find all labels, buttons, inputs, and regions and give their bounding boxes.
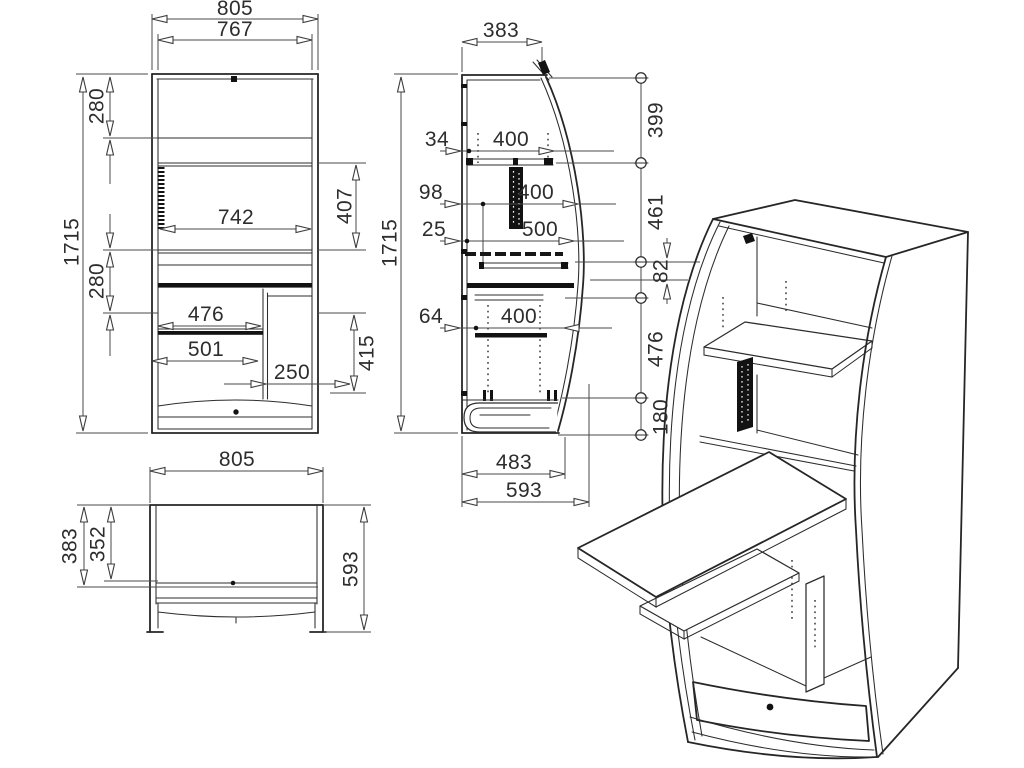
iso-drawer-knob xyxy=(767,704,774,711)
dim-399: 399 xyxy=(645,102,668,138)
dim-501: 501 xyxy=(188,338,224,361)
dim-98: 98 xyxy=(419,181,443,204)
dim-476-side: 476 xyxy=(645,331,668,367)
dim-1715-side: 1715 xyxy=(379,219,402,267)
dim-280-upper: 280 xyxy=(86,88,109,124)
iso-hinge xyxy=(743,233,755,244)
dim-805-top: 805 xyxy=(217,0,253,20)
iso-drawer xyxy=(690,682,874,757)
dim-742: 742 xyxy=(218,206,254,229)
iso-divider xyxy=(806,576,824,692)
plan-view: 805 383 352 593 xyxy=(59,448,372,632)
dim-767: 767 xyxy=(217,18,253,41)
dim-805-plan: 805 xyxy=(219,448,255,471)
desk-surface-edge xyxy=(158,283,312,288)
dim-476-front: 476 xyxy=(188,303,224,326)
drawer-knob xyxy=(233,409,238,414)
side-cabinet-outline xyxy=(461,60,584,433)
dim-250: 250 xyxy=(274,361,310,384)
front-dimensions: 805 767 280 280 1715 742 407 476 xyxy=(61,0,379,433)
dim-593-side: 593 xyxy=(506,479,542,502)
iso-top-panel xyxy=(713,200,968,257)
dim-25: 25 xyxy=(422,218,446,241)
iso-right-panel xyxy=(878,232,968,757)
dim-593-plan: 593 xyxy=(340,551,363,587)
technical-drawing: 805 767 280 280 1715 742 407 476 xyxy=(0,0,1024,768)
front-view: 805 767 280 280 1715 742 407 476 xyxy=(61,0,379,433)
side-interior xyxy=(463,133,574,432)
dim-400-b: 400 xyxy=(518,181,554,204)
dim-400-a: 400 xyxy=(493,128,529,151)
dim-483: 483 xyxy=(496,451,532,474)
lower-shelf-edge xyxy=(158,331,263,335)
iso-shelf xyxy=(704,322,872,377)
dim-407: 407 xyxy=(334,188,357,224)
drawer-front-curve xyxy=(158,400,312,406)
dim-64: 64 xyxy=(419,305,443,328)
plan-dimensions: 805 383 352 593 xyxy=(59,448,372,632)
iso-bottom-edge xyxy=(688,742,877,758)
plan-knob xyxy=(231,581,236,586)
desk-section xyxy=(467,283,574,288)
dim-82: 82 xyxy=(650,259,673,283)
dim-461: 461 xyxy=(645,194,668,230)
dim-352: 352 xyxy=(87,526,110,562)
dim-1715-front: 1715 xyxy=(61,218,84,266)
isometric-view xyxy=(578,200,968,758)
plan-drawer-curve xyxy=(158,612,315,617)
keyboard-tray-section xyxy=(475,333,547,338)
datum-chain: 399 461 82 476 180 xyxy=(549,73,700,440)
dim-180: 180 xyxy=(650,399,673,435)
dim-415: 415 xyxy=(356,335,379,371)
dim-383-plan: 383 xyxy=(59,528,82,564)
dim-383-side: 383 xyxy=(483,19,519,42)
iso-cable-duct xyxy=(737,357,753,432)
dim-34: 34 xyxy=(425,128,449,151)
drawer-section xyxy=(464,403,558,432)
side-view: 383 1715 34 400 98 400 25 500 xyxy=(379,19,701,507)
plan-outline xyxy=(147,505,326,632)
door-knob xyxy=(231,76,237,82)
dim-500: 500 xyxy=(522,218,558,241)
iso-right-stile xyxy=(854,256,892,757)
dim-280-mid: 280 xyxy=(86,263,109,299)
dim-400-c: 400 xyxy=(501,305,537,328)
